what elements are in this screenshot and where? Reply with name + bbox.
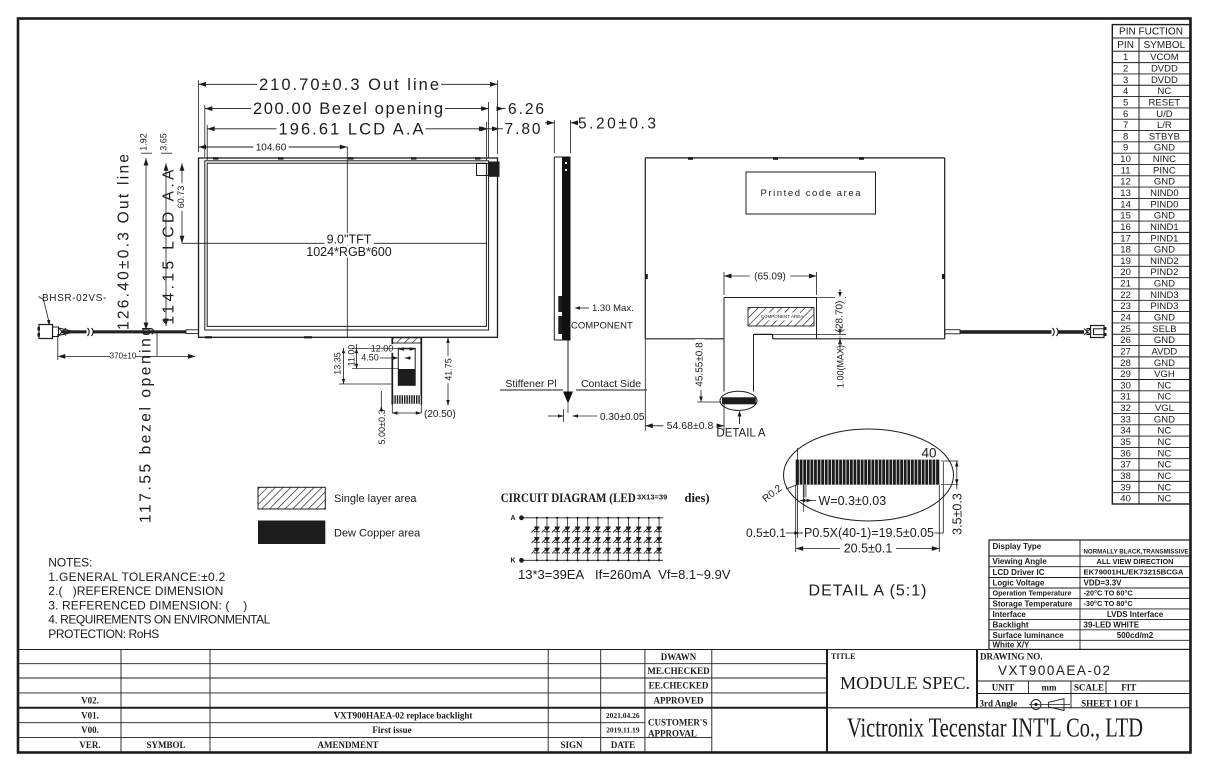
svg-text:PIND3: PIND3 <box>1150 301 1178 312</box>
svg-text:200.00 Bezel opening: 200.00 Bezel opening <box>253 100 443 118</box>
svg-text:DVDD: DVDD <box>1151 75 1178 86</box>
svg-text:White X/Y: White X/Y <box>993 641 1031 650</box>
svg-text:mm: mm <box>1042 683 1057 693</box>
svg-text:Backlight: Backlight <box>993 620 1029 629</box>
svg-text:3X13=39: 3X13=39 <box>637 493 667 502</box>
svg-text:2019.11.19: 2019.11.19 <box>606 726 640 735</box>
svg-text:36: 36 <box>1120 448 1131 459</box>
svg-text:20.5±0.1: 20.5±0.1 <box>844 541 893 555</box>
svg-text:31: 31 <box>1120 392 1131 403</box>
svg-text:P0.5X(40-1)=19.5±0.05: P0.5X(40-1)=19.5±0.05 <box>804 526 934 540</box>
svg-text:NC: NC <box>1158 392 1172 403</box>
svg-text:K: K <box>510 558 515 565</box>
svg-text:DVDD: DVDD <box>1151 64 1178 75</box>
svg-text:NINC: NINC <box>1153 154 1176 165</box>
svg-text:AMENDMENT: AMENDMENT <box>318 740 379 750</box>
svg-text:SYMBOL: SYMBOL <box>146 740 185 750</box>
svg-text:COMPONENT AREA: COMPONENT AREA <box>761 314 803 319</box>
svg-text:3.65: 3.65 <box>159 133 169 151</box>
svg-text:3. REFERENCED DIMENSION: (: 3. REFERENCED DIMENSION: ( ) <box>48 599 247 613</box>
svg-text:0.30±0.05: 0.30±0.05 <box>600 412 645 423</box>
svg-text:29: 29 <box>1120 369 1131 380</box>
svg-text:-20°C TO 60°C: -20°C TO 60°C <box>1084 589 1134 598</box>
svg-text:PIN FUCTION: PIN FUCTION <box>1119 27 1183 38</box>
svg-text:SYMBOL: SYMBOL <box>1144 40 1186 51</box>
svg-text:ALL VIEW DIRECTION: ALL VIEW DIRECTION <box>1097 557 1174 566</box>
svg-text:PIN: PIN <box>1117 40 1134 51</box>
svg-text:MODULE SPEC.: MODULE SPEC. <box>840 673 970 693</box>
svg-text:2021.04.26: 2021.04.26 <box>606 711 640 720</box>
svg-text:VER.: VER. <box>79 740 100 750</box>
svg-text:16: 16 <box>1120 222 1131 233</box>
svg-text:3rd Angle: 3rd Angle <box>980 699 1018 709</box>
svg-text:APPROVED: APPROVED <box>654 695 704 705</box>
svg-text:13*3=39EA If=260mA Vf=8.1~9: 13*3=39EA If=260mA Vf=8.1~9.9V <box>518 567 731 582</box>
svg-text:104.60: 104.60 <box>256 142 287 153</box>
svg-text:33: 33 <box>1120 414 1131 425</box>
svg-text:NC: NC <box>1158 494 1172 505</box>
svg-text:SHEET 1 OF 1: SHEET 1 OF 1 <box>1081 699 1139 709</box>
svg-text:10: 10 <box>1120 154 1131 165</box>
svg-text:EE.CHECKED: EE.CHECKED <box>649 681 709 691</box>
svg-text:NOTES:: NOTES: <box>48 556 92 570</box>
svg-text:17: 17 <box>1120 233 1131 244</box>
svg-text:25: 25 <box>1120 324 1131 335</box>
svg-text:FIT: FIT <box>1121 683 1136 693</box>
svg-text:Logic Voltage: Logic Voltage <box>993 578 1045 587</box>
svg-text:Display Type: Display Type <box>993 542 1042 551</box>
svg-text:VGL: VGL <box>1155 403 1174 414</box>
svg-text:DETAIL A (5:1): DETAIL A (5:1) <box>809 582 928 599</box>
svg-text:PIND1: PIND1 <box>1150 233 1178 244</box>
svg-text:3: 3 <box>1123 75 1128 86</box>
svg-text:35: 35 <box>1120 437 1131 448</box>
svg-text:2: 2 <box>1123 64 1128 75</box>
svg-text:NC: NC <box>1158 380 1172 391</box>
svg-text:CUSTOMER'S: CUSTOMER'S <box>648 718 707 728</box>
svg-text:45.55±0.8: 45.55±0.8 <box>695 342 706 387</box>
svg-text:NC: NC <box>1158 437 1172 448</box>
svg-text:COMPONENT: COMPONENT <box>571 321 633 332</box>
svg-text:NC: NC <box>1158 471 1172 482</box>
svg-text:L/R: L/R <box>1157 120 1172 131</box>
svg-text:V01.: V01. <box>81 710 99 720</box>
svg-text:VXT900HAEA-02 replace backli: VXT900HAEA-02 replace backlight <box>334 710 473 720</box>
svg-text:PIND2: PIND2 <box>1150 267 1178 278</box>
svg-text:22: 22 <box>1120 290 1131 301</box>
svg-text:PIND0: PIND0 <box>1150 199 1178 210</box>
svg-text:20: 20 <box>1120 267 1131 278</box>
svg-text:54.68±0.8: 54.68±0.8 <box>667 420 714 432</box>
svg-text:VCOM: VCOM <box>1150 52 1179 63</box>
svg-text:NC: NC <box>1158 482 1172 493</box>
svg-text:Surface luminance: Surface luminance <box>993 631 1065 640</box>
svg-text:60.73: 60.73 <box>176 186 186 209</box>
svg-text:39-LED WHITE: 39-LED WHITE <box>1084 620 1140 629</box>
svg-text:GND: GND <box>1154 245 1175 256</box>
svg-text:NORMALLY BLACK,TRANSMISSIVE: NORMALLY BLACK,TRANSMISSIVE <box>1084 548 1189 555</box>
svg-text:NIND1: NIND1 <box>1150 222 1179 233</box>
svg-text:dies): dies) <box>685 491 710 505</box>
svg-text:W=0.3±0.03: W=0.3±0.03 <box>819 494 887 508</box>
svg-text:37: 37 <box>1120 460 1131 471</box>
svg-text:38: 38 <box>1120 471 1131 482</box>
svg-text:9: 9 <box>1123 143 1128 154</box>
svg-text:APPROVAL: APPROVAL <box>648 729 697 739</box>
svg-text:-30°C TO 80°C: -30°C TO 80°C <box>1084 599 1134 608</box>
svg-text:V00.: V00. <box>81 725 99 735</box>
svg-text:NIND3: NIND3 <box>1150 290 1179 301</box>
svg-text:13.35: 13.35 <box>333 352 343 375</box>
svg-text:41.75: 41.75 <box>444 358 454 381</box>
svg-text:39: 39 <box>1120 482 1131 493</box>
svg-text:15: 15 <box>1120 211 1131 222</box>
svg-text:NC: NC <box>1158 460 1172 471</box>
svg-text:7: 7 <box>1123 120 1128 131</box>
svg-text:1: 1 <box>1123 52 1128 63</box>
svg-text:UNIT: UNIT <box>992 683 1015 693</box>
svg-text:DRAWING NO.: DRAWING NO. <box>980 651 1043 661</box>
svg-text:40: 40 <box>921 446 936 461</box>
svg-text:U/D: U/D <box>1156 109 1173 120</box>
svg-text:3.5±0.3: 3.5±0.3 <box>951 493 965 535</box>
svg-text:GND: GND <box>1154 211 1175 222</box>
svg-text:34: 34 <box>1120 426 1131 437</box>
svg-text:GND: GND <box>1154 177 1175 188</box>
svg-text:TITLE: TITLE <box>831 652 855 661</box>
svg-text:DWAWN: DWAWN <box>661 652 697 662</box>
svg-text:NIND2: NIND2 <box>1150 256 1179 267</box>
svg-text:27: 27 <box>1120 346 1131 357</box>
svg-text:28: 28 <box>1120 358 1131 369</box>
svg-text:19: 19 <box>1120 256 1131 267</box>
svg-text:STBYB: STBYB <box>1149 131 1180 142</box>
svg-text:1.00(MAX): 1.00(MAX) <box>836 345 846 388</box>
svg-text:2.( )REFERENCE DIMENSION: 2.( )REFERENCE DIMENSION <box>48 584 223 598</box>
svg-text:(65.09): (65.09) <box>754 271 786 282</box>
svg-text:GND: GND <box>1154 414 1175 425</box>
svg-text:Dew Copper area: Dew Copper area <box>334 527 421 539</box>
svg-text:Contact Side: Contact Side <box>581 378 641 390</box>
svg-text:VGH: VGH <box>1154 369 1175 380</box>
svg-text:V02.: V02. <box>81 695 99 705</box>
svg-text:VXT900AEA-02: VXT900AEA-02 <box>998 663 1110 678</box>
svg-text:NC: NC <box>1158 426 1172 437</box>
svg-text:A: A <box>510 515 515 522</box>
svg-text:1024*RGB*600: 1024*RGB*600 <box>306 245 392 259</box>
svg-text:PROTECTION: RoHS: PROTECTION: RoHS <box>48 627 159 641</box>
svg-text:Storage Temperature: Storage Temperature <box>993 599 1073 608</box>
svg-text:40: 40 <box>1120 494 1131 505</box>
svg-text:21: 21 <box>1120 279 1131 290</box>
svg-text:4. REQUIREMENTS ON ENVIRONM: 4. REQUIREMENTS ON ENVIRONMENTAL <box>48 613 270 627</box>
svg-text:BHSR-02VS-: BHSR-02VS- <box>42 293 107 304</box>
svg-text:VDD=3.3V: VDD=3.3V <box>1084 578 1123 587</box>
svg-text:ME.CHECKED: ME.CHECKED <box>647 666 710 676</box>
svg-text:LCD Driver IC: LCD Driver IC <box>993 568 1045 577</box>
svg-text:30: 30 <box>1120 380 1131 391</box>
svg-text:6: 6 <box>1123 109 1128 120</box>
svg-text:370±10: 370±10 <box>110 351 137 360</box>
svg-text:Single layer area: Single layer area <box>334 493 417 505</box>
svg-text:NC: NC <box>1158 448 1172 459</box>
svg-text:AVDD: AVDD <box>1152 346 1178 357</box>
svg-text:Interface: Interface <box>993 610 1027 619</box>
svg-text:32: 32 <box>1120 403 1131 414</box>
svg-text:GND: GND <box>1154 279 1175 290</box>
svg-text:26: 26 <box>1120 335 1131 346</box>
svg-text:SIGN: SIGN <box>560 740 583 750</box>
svg-text:SCALE: SCALE <box>1074 683 1104 693</box>
svg-text:CIRCUIT DIAGRAM (LED: CIRCUIT DIAGRAM (LED <box>501 491 636 505</box>
svg-text:4.50: 4.50 <box>361 353 379 363</box>
svg-text:5.00±0.3: 5.00±0.3 <box>377 410 387 445</box>
svg-text:GND: GND <box>1154 143 1175 154</box>
svg-text:24: 24 <box>1120 312 1131 323</box>
svg-text:196.61 LCD A.A: 196.61 LCD A.A <box>279 120 424 138</box>
svg-text:Stiffener Pl: Stiffener Pl <box>505 378 556 390</box>
svg-text:13: 13 <box>1120 188 1131 199</box>
svg-text:Operation Temperature: Operation Temperature <box>993 589 1072 598</box>
svg-text:114.15 LCD A.A: 114.15 LCD A.A <box>161 169 178 325</box>
svg-text:6.26: 6.26 <box>508 101 544 118</box>
svg-text:Victronix Tecenstar INT'L Co.,: Victronix Tecenstar INT'L Co., LTD <box>847 713 1143 743</box>
svg-text:11.00: 11.00 <box>347 345 357 367</box>
svg-text:7.80: 7.80 <box>505 121 541 138</box>
svg-text:EK79001HL/EK73215BCGA: EK79001HL/EK73215BCGA <box>1084 568 1185 577</box>
svg-text:1.GENERAL TOLERANCE:±0.2: 1.GENERAL TOLERANCE:±0.2 <box>48 570 225 584</box>
svg-text:SELB: SELB <box>1152 324 1176 335</box>
svg-text:1.92: 1.92 <box>139 133 149 151</box>
svg-text:23: 23 <box>1120 301 1131 312</box>
svg-text:12: 12 <box>1120 177 1131 188</box>
svg-text:LVDS Interface: LVDS Interface <box>1107 610 1164 619</box>
svg-text:NC: NC <box>1158 86 1172 97</box>
svg-text:14: 14 <box>1120 199 1131 210</box>
svg-text:Viewing Angle: Viewing Angle <box>993 557 1048 566</box>
svg-text:0.5±0.1: 0.5±0.1 <box>746 526 786 540</box>
svg-text:8: 8 <box>1123 131 1128 142</box>
svg-text:5: 5 <box>1123 97 1128 108</box>
svg-text:DATE: DATE <box>611 740 635 750</box>
svg-text:First issue: First issue <box>372 725 411 735</box>
svg-text:GND: GND <box>1154 312 1175 323</box>
svg-text:(20.50): (20.50) <box>424 409 456 420</box>
svg-text:1.30 Max.: 1.30 Max. <box>592 303 634 314</box>
svg-text:4: 4 <box>1123 86 1128 97</box>
svg-text:RESET: RESET <box>1149 97 1181 108</box>
svg-text:DETAIL A: DETAIL A <box>716 427 766 439</box>
svg-text:18: 18 <box>1120 245 1131 256</box>
svg-text:GND: GND <box>1154 358 1175 369</box>
svg-text:500cd/m2: 500cd/m2 <box>1117 631 1154 640</box>
svg-text:PINC: PINC <box>1153 165 1176 176</box>
svg-text:NIND0: NIND0 <box>1150 188 1179 199</box>
svg-text:11: 11 <box>1121 165 1131 176</box>
svg-text:GND: GND <box>1154 335 1175 346</box>
